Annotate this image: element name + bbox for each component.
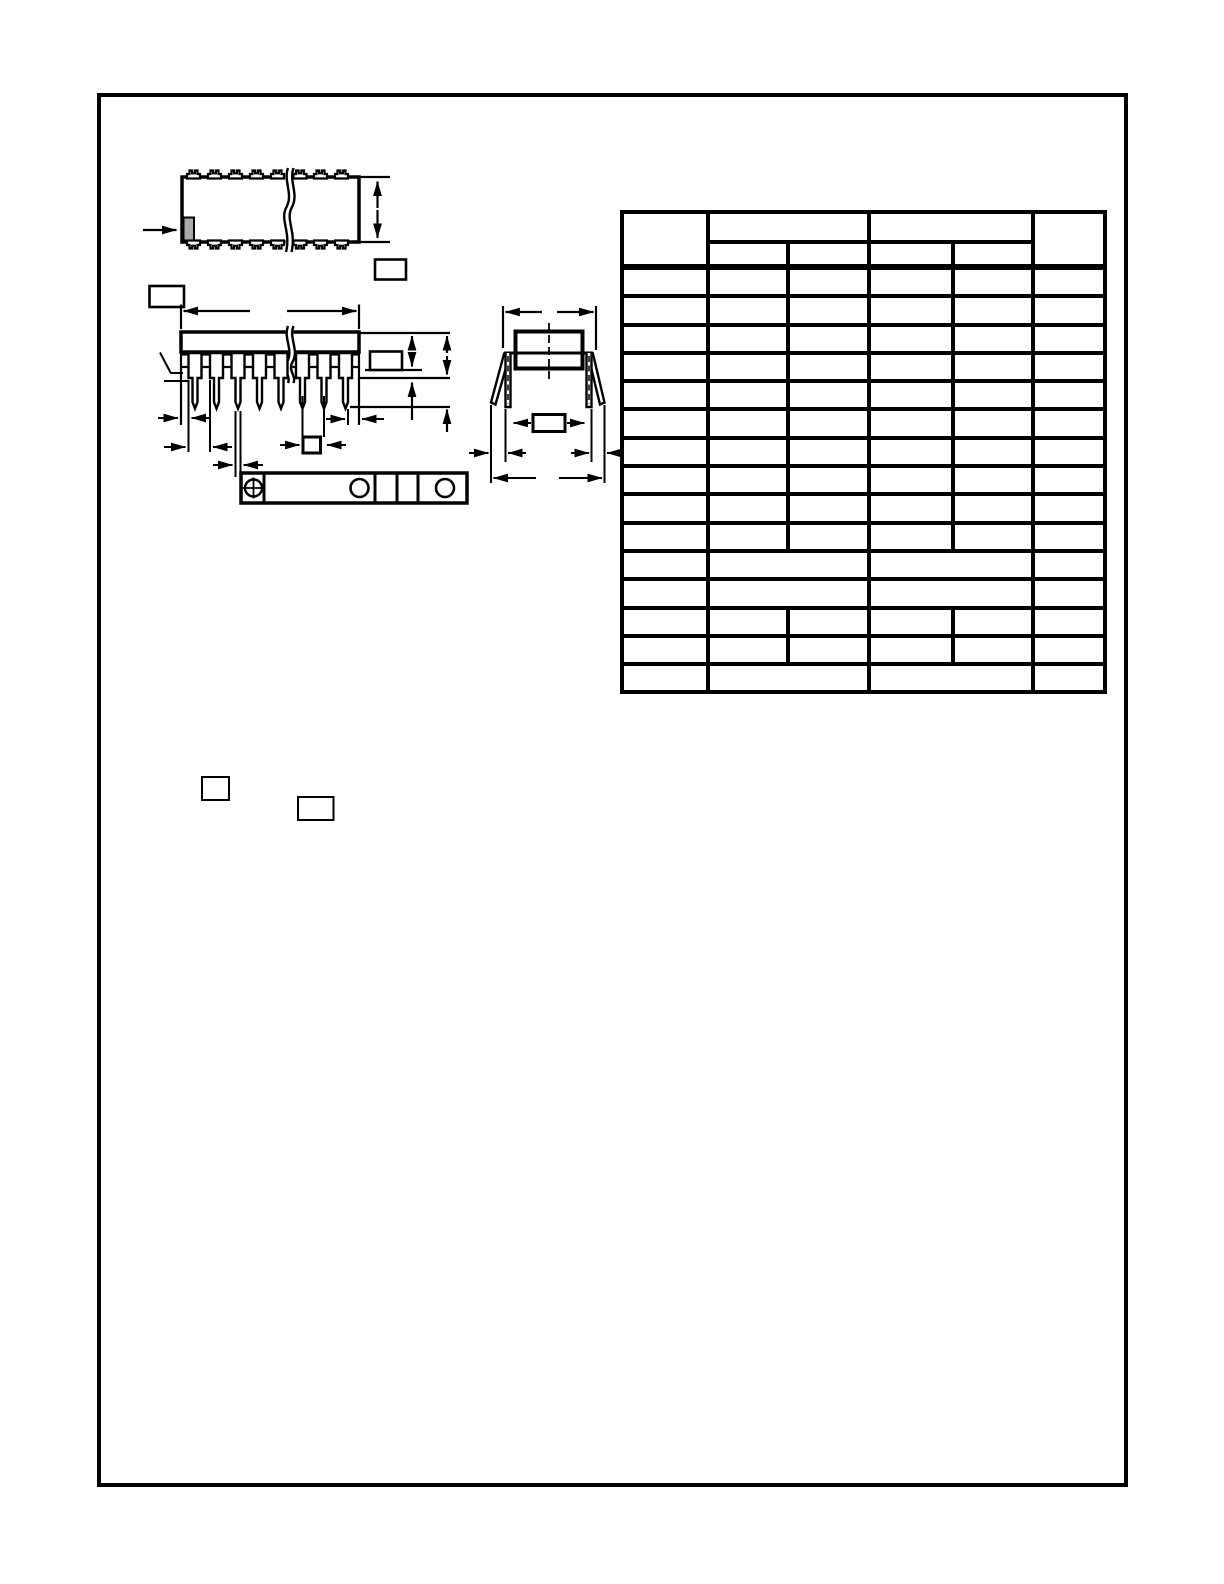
table-cell: [1033, 608, 1105, 636]
table-row: [622, 494, 1105, 522]
table-header-row: [622, 212, 1105, 242]
table-row: [622, 551, 1105, 579]
table-cell: [953, 409, 1033, 437]
table-cell: [1033, 466, 1105, 494]
table-cell: [622, 608, 708, 636]
table-cell: [1033, 353, 1105, 381]
tooling-bar: [241, 473, 467, 503]
table-cell: [953, 494, 1033, 522]
table-cell: [788, 353, 869, 381]
table-cell: [788, 523, 869, 551]
table-cell: [869, 466, 953, 494]
table-cell: [953, 381, 1033, 409]
table-cell: [869, 267, 953, 296]
side-view-leads: [189, 353, 353, 409]
table-cell: [1033, 523, 1105, 551]
table-cell: [622, 381, 708, 409]
table-cell: [869, 296, 953, 324]
side-view: [158, 305, 450, 478]
table-cell: [708, 325, 788, 353]
table-cell: [1033, 664, 1105, 692]
table-cell: [1033, 579, 1105, 607]
table-cell: [869, 523, 953, 551]
table-row: [622, 466, 1105, 494]
subheader-cell: [788, 242, 869, 267]
table-cell: [622, 409, 708, 437]
table-cell: [1033, 494, 1105, 522]
subheader-cell: [953, 242, 1033, 267]
table-row: [622, 438, 1105, 466]
table-cell: [1033, 325, 1105, 353]
table-row: [622, 579, 1105, 607]
table-cell: [953, 325, 1033, 353]
header-cell-dim: [622, 212, 708, 267]
table-cell: [622, 636, 708, 664]
table-body: [622, 267, 1105, 692]
table-header: [622, 212, 1105, 267]
table-cell: [622, 664, 708, 692]
basic-dimension-box: [533, 415, 565, 432]
table-cell: [953, 608, 1033, 636]
header-cell-group-right: [869, 212, 1033, 242]
table-cell: [708, 664, 869, 692]
pin1-index-mark: [184, 218, 195, 241]
table-row: [622, 353, 1105, 381]
table-cell: [708, 494, 788, 522]
table-row: [622, 267, 1105, 296]
table-cell: [622, 523, 708, 551]
table-cell: [869, 409, 953, 437]
table-cell: [708, 296, 788, 324]
table-cell: [869, 608, 953, 636]
table-cell: [953, 267, 1033, 296]
note-ref-box-1: [202, 777, 229, 800]
table-cell: [953, 523, 1033, 551]
table-cell: [788, 608, 869, 636]
table-cell: [869, 579, 1033, 607]
table-cell: [708, 353, 788, 381]
table-row: [622, 664, 1105, 692]
table-cell: [622, 325, 708, 353]
dimension-table-container: [620, 210, 1107, 694]
table-cell: [1033, 296, 1105, 324]
table-cell: [869, 381, 953, 409]
header-cell-group-left: [708, 212, 869, 242]
table-cell: [869, 551, 1033, 579]
basic-dimension-box: [303, 437, 321, 453]
table-cell: [869, 636, 953, 664]
header-cell-notes: [1033, 212, 1105, 267]
table-cell: [869, 325, 953, 353]
table-cell: [953, 296, 1033, 324]
table-row: [622, 608, 1105, 636]
table-row: [622, 636, 1105, 664]
table-cell: [869, 438, 953, 466]
dimension-label-box: [150, 286, 185, 307]
table-cell: [869, 664, 1033, 692]
table-cell: [708, 523, 788, 551]
package-body-top-view: [182, 177, 359, 242]
table-row: [622, 523, 1105, 551]
dimension-table: [620, 210, 1107, 694]
table-cell: [788, 296, 869, 324]
table-cell: [953, 636, 1033, 664]
dimension-label-box: [370, 352, 402, 371]
datasheet-page: [0, 0, 1224, 1584]
table-cell: [788, 494, 869, 522]
table-cell: [788, 438, 869, 466]
table-cell: [708, 466, 788, 494]
table-cell: [788, 267, 869, 296]
package-body-side-view: [181, 332, 359, 352]
table-cell: [622, 551, 708, 579]
subheader-cell: [869, 242, 953, 267]
table-cell: [708, 551, 869, 579]
table-cell: [788, 409, 869, 437]
table-row: [622, 296, 1105, 324]
table-row: [622, 409, 1105, 437]
table-cell: [708, 438, 788, 466]
dimension-label-box: [375, 260, 406, 280]
table-cell: [1033, 438, 1105, 466]
table-cell: [622, 494, 708, 522]
table-cell: [788, 325, 869, 353]
table-cell: [953, 438, 1033, 466]
table-cell: [788, 636, 869, 664]
table-cell: [708, 267, 788, 296]
leader-line: [160, 353, 171, 373]
table-cell: [953, 353, 1033, 381]
table-cell: [1033, 409, 1105, 437]
table-cell: [1033, 551, 1105, 579]
end-view: [469, 306, 621, 483]
table-cell: [622, 579, 708, 607]
note-ref-box-2: [298, 797, 334, 820]
top-view: [143, 168, 406, 280]
table-cell: [1033, 381, 1105, 409]
table-cell: [788, 466, 869, 494]
table-cell: [869, 353, 953, 381]
table-cell: [1033, 267, 1105, 296]
table-cell: [622, 438, 708, 466]
table-cell: [708, 409, 788, 437]
table-cell: [622, 353, 708, 381]
table-cell: [788, 381, 869, 409]
table-cell: [1033, 636, 1105, 664]
subheader-cell: [708, 242, 788, 267]
table-cell: [708, 636, 788, 664]
table-cell: [953, 466, 1033, 494]
tooling-bar-outline: [241, 473, 467, 503]
table-cell: [622, 296, 708, 324]
table-cell: [869, 494, 953, 522]
table-cell: [708, 608, 788, 636]
table-row: [622, 381, 1105, 409]
table-cell: [708, 579, 869, 607]
table-cell: [708, 381, 788, 409]
table-cell: [622, 267, 708, 296]
table-row: [622, 325, 1105, 353]
table-cell: [622, 466, 708, 494]
